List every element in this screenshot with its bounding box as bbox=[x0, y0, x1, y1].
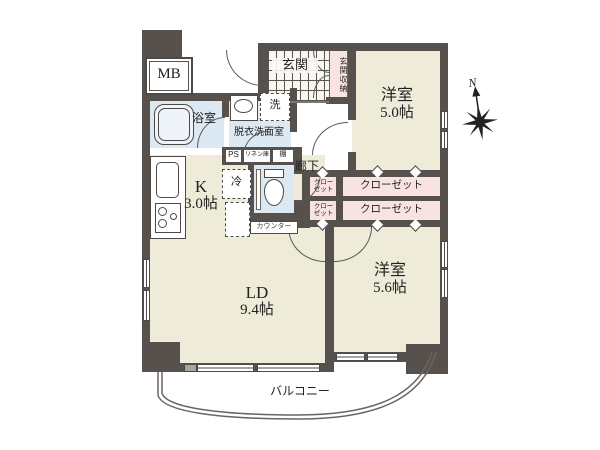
front-door-arc bbox=[226, 50, 263, 86]
washroom-label: 脱衣洗面室 bbox=[226, 127, 292, 138]
closet-small-2-line2: ゼット bbox=[310, 210, 337, 217]
closet-small-1-label: クロー ゼット bbox=[310, 179, 337, 194]
bathroom-label: 浴室 bbox=[184, 112, 224, 125]
wall-closet-post bbox=[336, 172, 343, 224]
wall-storage-right bbox=[348, 43, 356, 120]
wall-right bbox=[440, 43, 448, 362]
bedroom2-label: 洋室 5.6帖 bbox=[355, 262, 425, 297]
bedroom1-label: 洋室 5.0帖 bbox=[362, 87, 432, 122]
wall-hall-bedroom1-stub bbox=[348, 152, 356, 172]
window-ld-left-1 bbox=[143, 259, 150, 288]
bedroom1-name: 洋室 bbox=[362, 87, 432, 105]
meter-box-label: MB bbox=[145, 66, 193, 83]
living-label: LD 9.4帖 bbox=[217, 283, 297, 319]
compass-icon: N bbox=[450, 72, 510, 150]
vanity-sink-oval bbox=[234, 99, 253, 113]
hallway-label: 廊下 bbox=[288, 160, 326, 173]
washer-label: 洗 bbox=[260, 99, 290, 111]
counter-label: カウンター bbox=[250, 223, 298, 231]
wall-toilet-bottom bbox=[248, 213, 302, 221]
linen-storage-label: リネン庫 bbox=[244, 152, 270, 159]
window-bedroom2-right-2 bbox=[441, 269, 448, 298]
living-name: LD bbox=[217, 283, 297, 302]
window-ld-left-2 bbox=[143, 290, 150, 321]
window-bedroom1-right-2 bbox=[441, 131, 448, 149]
kitchen-size: 3.0帖 bbox=[164, 196, 238, 213]
balcony-label: バルコニー bbox=[252, 385, 348, 398]
closet-small-1-line2: ゼット bbox=[310, 186, 337, 193]
stove-burner-2 bbox=[158, 219, 167, 228]
bedroom1-door-arc bbox=[312, 122, 348, 155]
entrance-storage-label: 玄関収納 bbox=[331, 52, 347, 97]
entrance-label: 玄関 bbox=[272, 58, 318, 73]
closet-large-2-label: クローゼット bbox=[343, 204, 440, 216]
floor-plan: MB 洗 冷 カウンター PS リネン庫 棚 浴室 脱衣洗面室 玄関 玄関収納 … bbox=[0, 0, 600, 450]
bedroom2-name: 洋室 bbox=[355, 262, 425, 280]
closet-small-2-label: クロー ゼット bbox=[310, 203, 337, 218]
window-bedroom2-right-1 bbox=[441, 241, 448, 268]
living-size: 9.4帖 bbox=[217, 302, 297, 319]
wall-closet-mid bbox=[309, 196, 440, 201]
window-bedroom1-right-1 bbox=[441, 111, 448, 129]
bedroom2-size: 5.6帖 bbox=[355, 280, 425, 297]
pipe-space-label: PS bbox=[226, 151, 241, 160]
kitchen-name: K bbox=[164, 177, 238, 196]
shelf-label: 棚 bbox=[273, 151, 293, 159]
toilet-tank bbox=[264, 169, 284, 178]
kitchen-label: K 3.0帖 bbox=[164, 177, 238, 213]
closet-large-1-label: クローゼット bbox=[343, 180, 440, 192]
toilet-counter-strip bbox=[256, 169, 261, 210]
compass-north-label: N bbox=[467, 75, 479, 90]
wall-washroom-right bbox=[290, 88, 297, 132]
stove-burner-3 bbox=[170, 213, 177, 220]
bedroom1-size: 5.0帖 bbox=[362, 105, 432, 122]
